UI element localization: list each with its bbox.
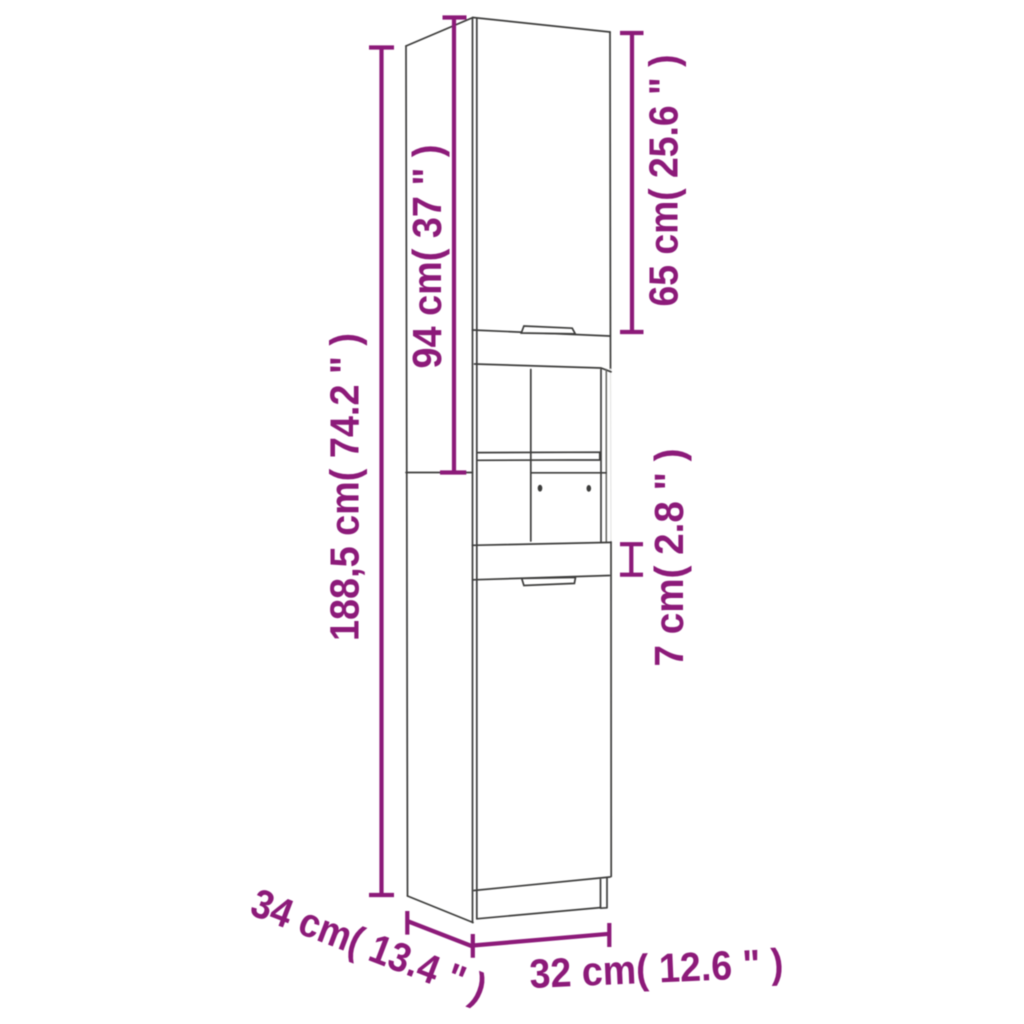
svg-text:188,5 cm( 74.2 " ): 188,5 cm( 74.2 " )	[322, 333, 368, 641]
svg-text:65 cm( 25.6 " ): 65 cm( 25.6 " )	[640, 55, 686, 307]
svg-text:7 cm( 2.8 " ): 7 cm( 2.8 " )	[646, 449, 692, 667]
svg-text:94 cm( 37 " ): 94 cm( 37 " )	[404, 145, 450, 369]
